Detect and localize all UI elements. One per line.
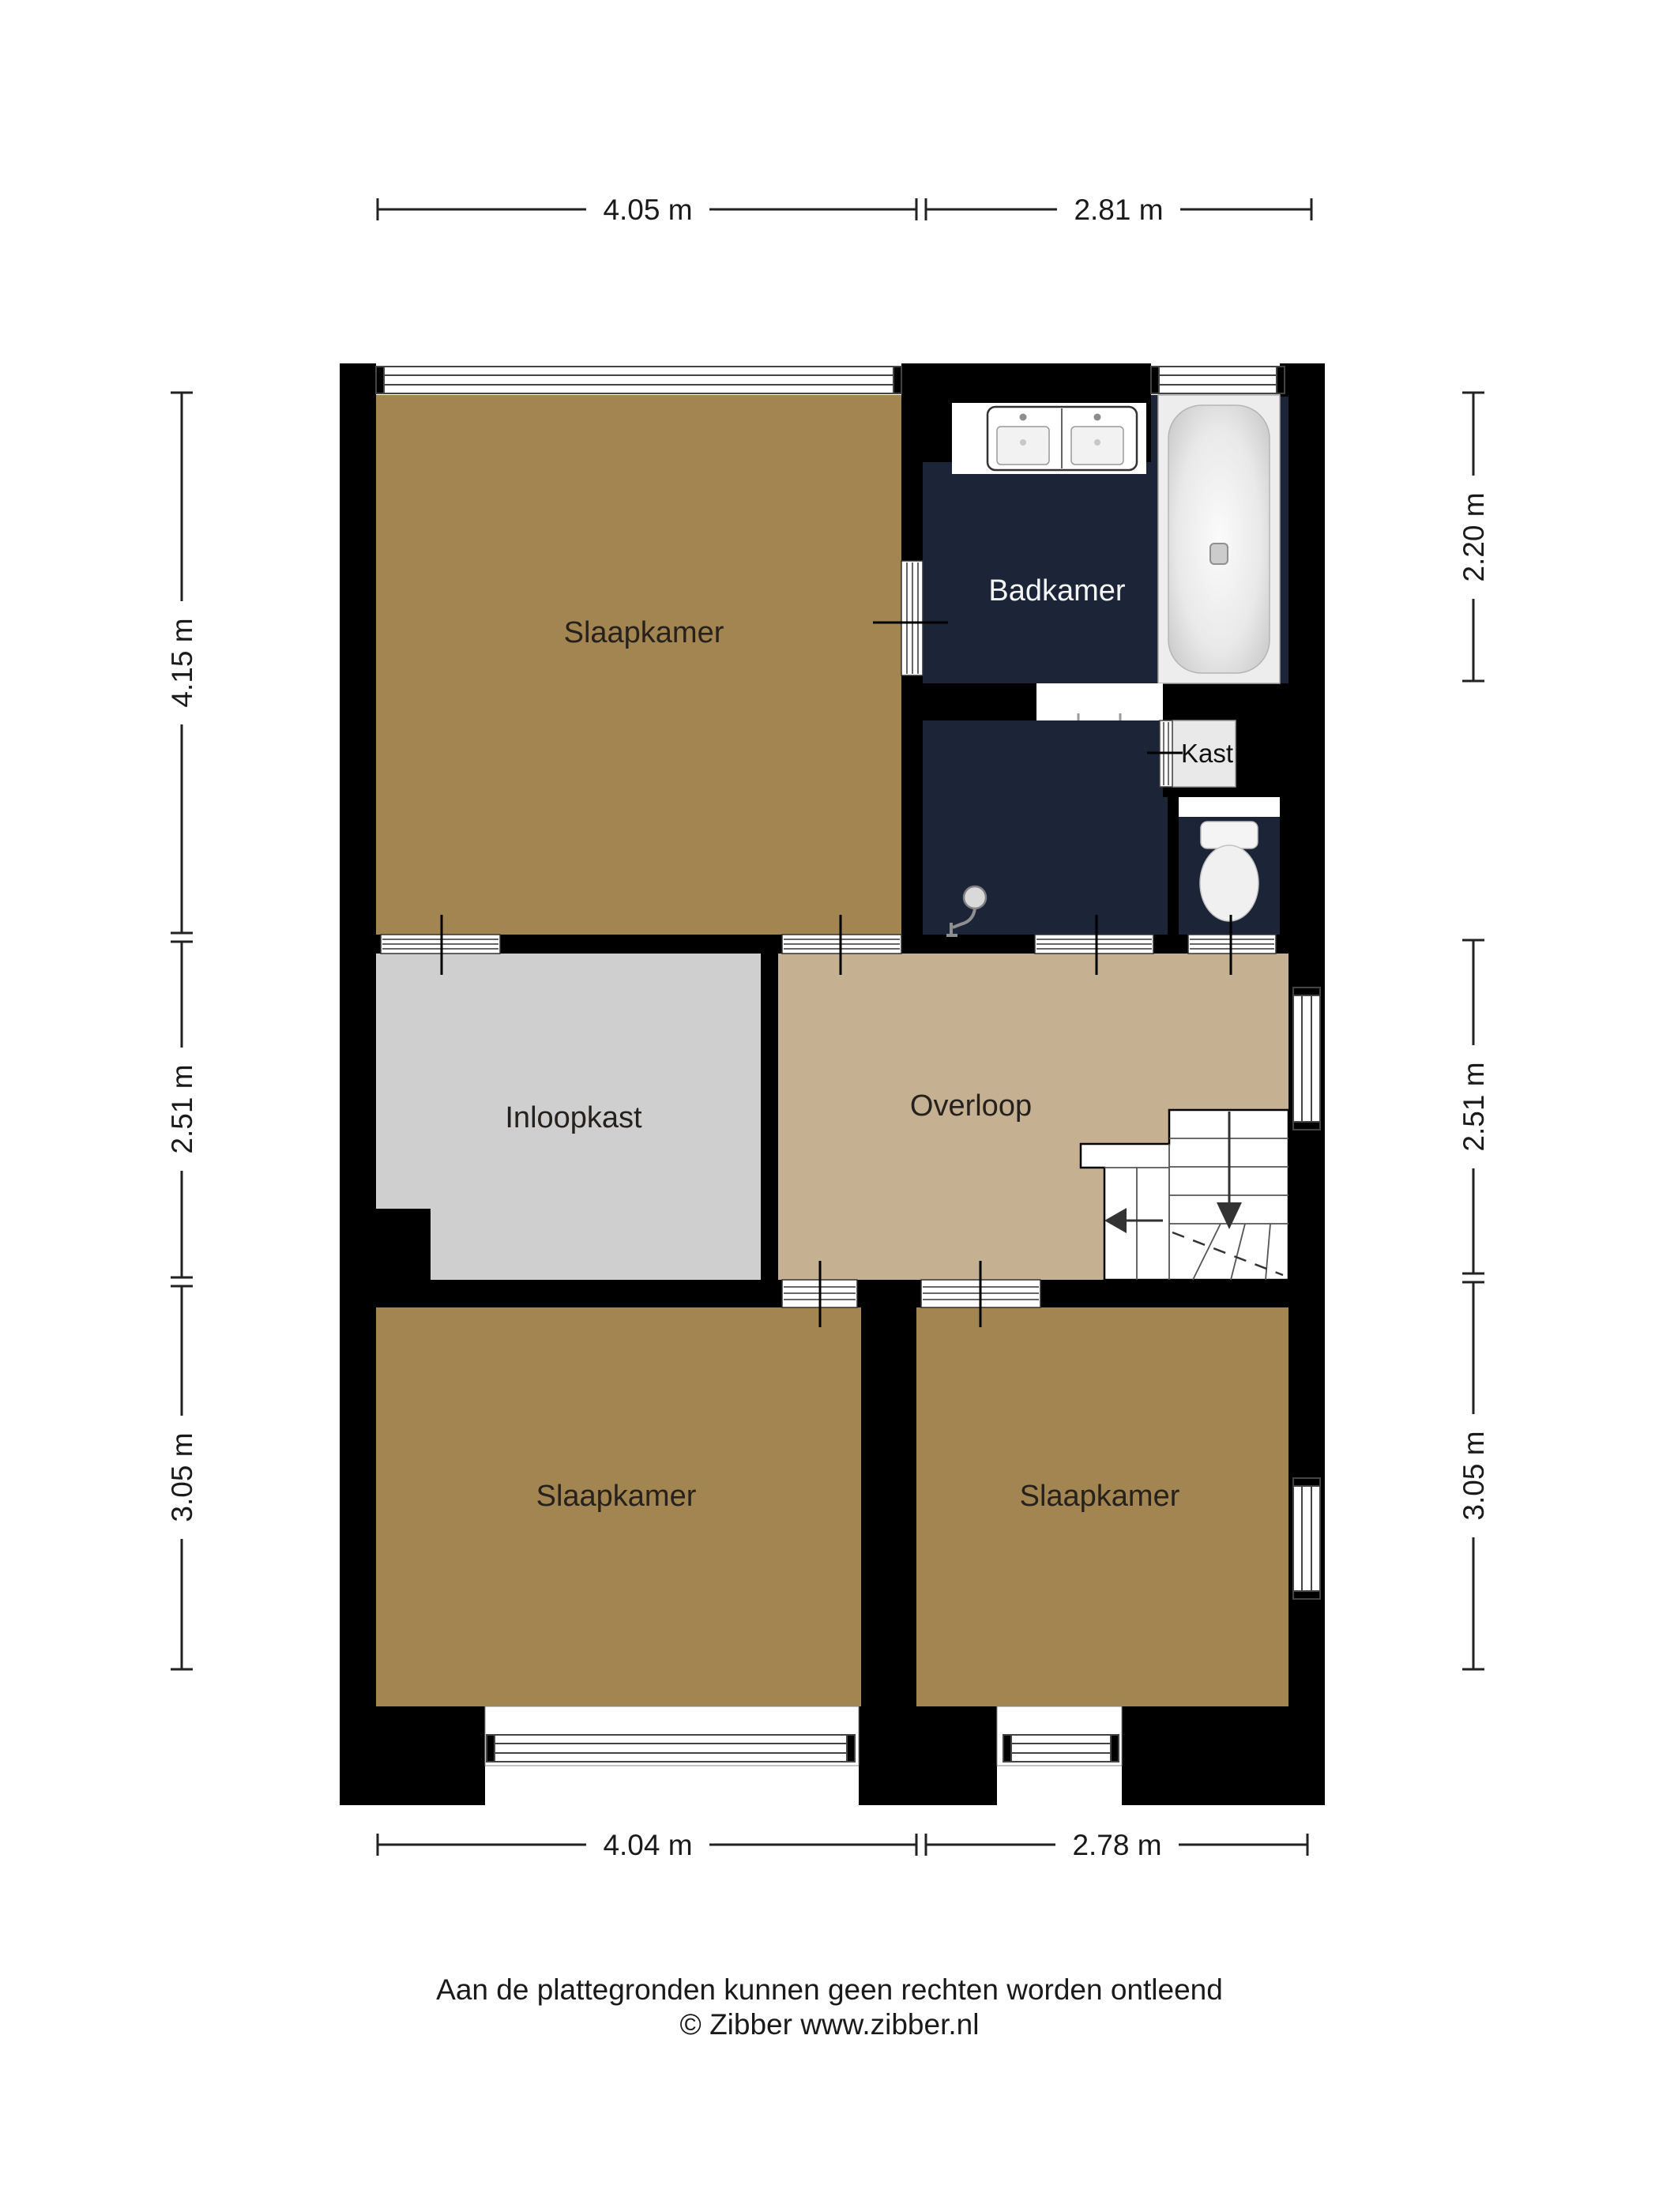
door-bedroomtl-bathroom (901, 561, 923, 675)
bathtub-icon (1158, 395, 1280, 683)
bathtub-drain (1210, 544, 1228, 564)
dim-left-1-label: 4.15 m (166, 618, 198, 707)
dim-bottom-2-label: 2.78 m (1072, 1829, 1161, 1861)
wall-closet-divider (761, 954, 778, 1280)
toilet-shelf (1179, 797, 1280, 817)
wall-bottom-right-block (1122, 1706, 1325, 1805)
wall-toilet-right (1280, 797, 1288, 935)
dim-right-3-label: 3.05 m (1458, 1431, 1490, 1520)
wall-band2-c (1040, 1280, 1288, 1307)
wall-band1-e (1276, 935, 1288, 954)
footer-credit: © Zibber www.zibber.nl (0, 2008, 1659, 2041)
wall-toilet-left (1168, 797, 1179, 935)
dim-bottom-1-label: 4.04 m (603, 1829, 692, 1861)
bathroom-opening (1036, 683, 1163, 720)
closet-label: Kast (1181, 739, 1233, 768)
wall-band2-a (340, 1280, 782, 1307)
door-bathroom-landing (1035, 935, 1153, 954)
dim-right-1-label: 2.20 m (1458, 492, 1490, 581)
window-bathroom-top (1151, 367, 1285, 393)
dim-left-2-label: 2.51 m (166, 1064, 198, 1153)
window-bedroom-tl-top (376, 367, 901, 393)
landing-label: Overloop (910, 1089, 1032, 1123)
wall-band1-c (901, 935, 1035, 954)
shower-area-floor (923, 720, 1168, 935)
wall-band1-a (340, 935, 381, 954)
wall-band1-d (1153, 935, 1188, 954)
window-bedroom-bl-bottom (487, 1735, 855, 1762)
wall-bath-horizontal-right (1163, 683, 1288, 720)
dim-left-3-label: 3.05 m (166, 1432, 198, 1522)
wall-left (340, 363, 376, 1766)
toilet-bowl-icon (1200, 845, 1258, 921)
wall-bedroom-divider (861, 1307, 916, 1706)
wall-bottom-left-block (340, 1706, 485, 1805)
dim-right-2-label: 2.51 m (1458, 1062, 1490, 1151)
wall-band1-b (500, 935, 782, 954)
walk-in-closet-label: Inloopkast (505, 1101, 642, 1134)
footer-disclaimer: Aan de plattegronden kunnen geen rechten… (0, 1973, 1659, 2007)
dim-top-2-label: 2.81 m (1074, 194, 1163, 226)
double-sink (952, 403, 1146, 474)
wall-closet-notch (376, 1209, 431, 1280)
bedroom-br-label: Slaapkamer (1020, 1480, 1180, 1513)
window-landing-right (1293, 987, 1320, 1130)
bedroom-tl-label: Slaapkamer (564, 616, 724, 649)
wall-band2-b (857, 1280, 921, 1307)
wall-top-right-corner (1280, 363, 1325, 397)
wall-bath-left-upper (901, 395, 923, 561)
window-bedroom-br-right (1293, 1478, 1320, 1599)
bathroom-label: Badkamer (988, 574, 1126, 608)
dim-top-1-label: 4.05 m (603, 194, 692, 226)
window-bedroom-br-bottom (1003, 1735, 1119, 1762)
toilet-tank-icon (1201, 822, 1258, 848)
bedroom-bl-label: Slaapkamer (536, 1480, 697, 1513)
bedroom-tl-floor (376, 395, 901, 935)
wall-bottom-mid-block (859, 1706, 997, 1805)
wall-bath-horizontal-left (901, 683, 1036, 720)
floor-plan: Slaapkamer Badkamer Kast Inloopkast Over… (0, 0, 1659, 2212)
